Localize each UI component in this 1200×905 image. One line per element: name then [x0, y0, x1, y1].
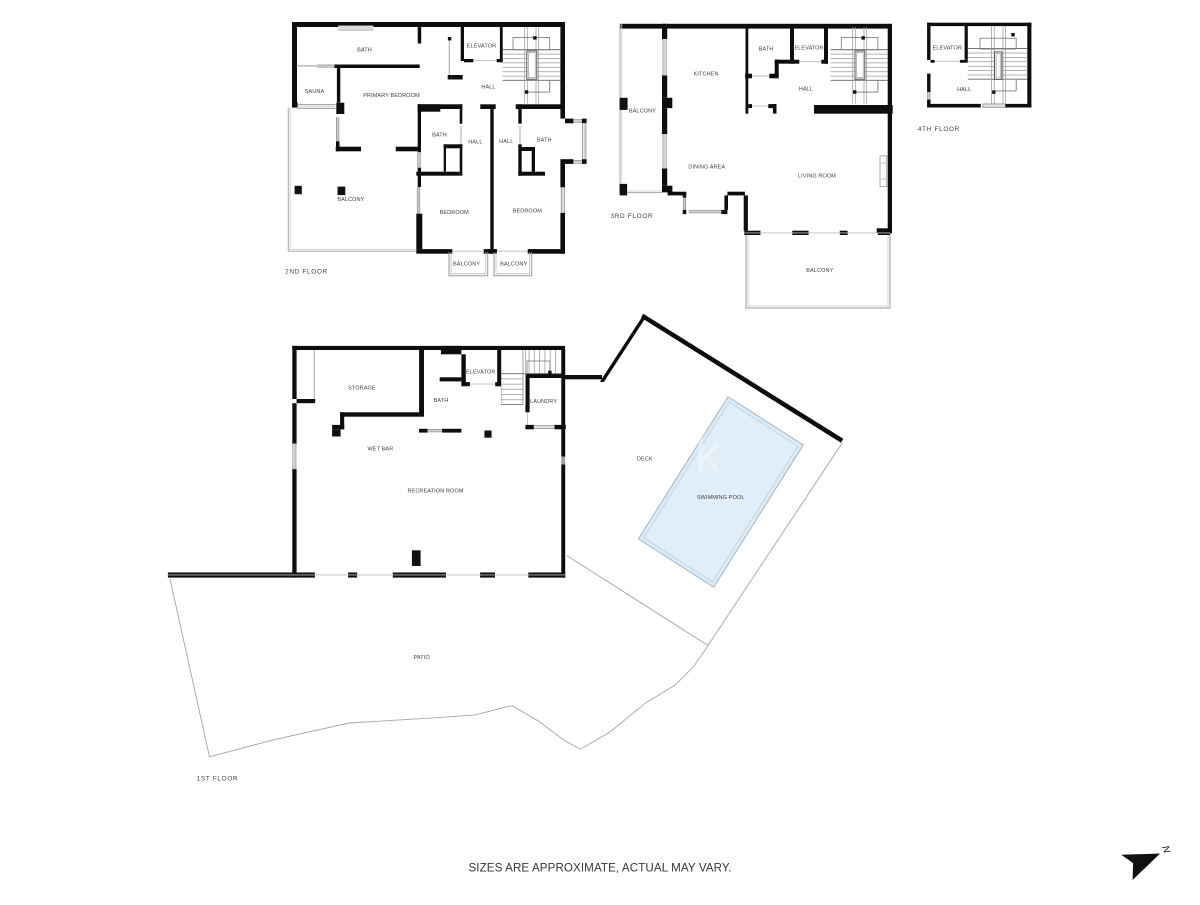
- svg-text:3RD FLOOR: 3RD FLOOR: [610, 213, 653, 220]
- svg-text:LIVING ROOM: LIVING ROOM: [798, 173, 836, 179]
- svg-text:BATH: BATH: [432, 133, 447, 139]
- svg-text:HALL: HALL: [799, 86, 813, 92]
- svg-text:ELEVATOR: ELEVATOR: [466, 370, 495, 376]
- svg-text:DECK: DECK: [637, 456, 653, 462]
- svg-text:BALCONY: BALCONY: [500, 262, 527, 268]
- svg-text:HALL: HALL: [468, 140, 482, 146]
- svg-text:SIZES ARE APPROXIMATE, ACTUAL: SIZES ARE APPROXIMATE, ACTUAL MAY VARY.: [468, 862, 731, 875]
- svg-text:DINING AREA: DINING AREA: [688, 165, 725, 171]
- svg-text:PATIO: PATIO: [414, 655, 431, 661]
- svg-text:BATH: BATH: [759, 46, 774, 52]
- svg-text:RECREATION ROOM: RECREATION ROOM: [407, 489, 463, 495]
- svg-text:ELEVATOR: ELEVATOR: [933, 45, 962, 51]
- svg-text:HALL: HALL: [499, 139, 513, 145]
- svg-text:HALL: HALL: [957, 87, 971, 93]
- svg-text:ELEVATOR: ELEVATOR: [795, 45, 824, 51]
- svg-text:BATH: BATH: [357, 47, 372, 53]
- svg-text:ELEVATOR: ELEVATOR: [467, 44, 496, 50]
- svg-text:BALCONY: BALCONY: [629, 109, 656, 115]
- svg-text:BALCONY: BALCONY: [337, 197, 364, 203]
- svg-text:BEDROOM: BEDROOM: [513, 208, 543, 214]
- svg-text:STORAGE: STORAGE: [348, 386, 376, 392]
- svg-text:2ND FLOOR: 2ND FLOOR: [285, 268, 328, 275]
- svg-text:KITCHEN: KITCHEN: [694, 72, 719, 78]
- svg-text:SWIMMING POOL: SWIMMING POOL: [697, 495, 745, 501]
- svg-text:HALL: HALL: [481, 85, 495, 91]
- svg-text:LAUNDRY: LAUNDRY: [530, 399, 557, 405]
- svg-text:BALCONY: BALCONY: [806, 268, 833, 274]
- svg-text:BATH: BATH: [434, 398, 449, 404]
- svg-text:BEDROOM: BEDROOM: [440, 210, 470, 216]
- svg-text:SAUNA: SAUNA: [305, 89, 325, 95]
- svg-text:BALCONY: BALCONY: [453, 262, 480, 268]
- svg-text:1ST FLOOR: 1ST FLOOR: [197, 776, 239, 783]
- svg-text:BATH: BATH: [537, 138, 552, 144]
- svg-text:4TH FLOOR: 4TH FLOOR: [918, 126, 960, 133]
- svg-text:WET BAR: WET BAR: [368, 447, 394, 453]
- svg-text:k: k: [695, 426, 721, 482]
- svg-text:PRIMARY BEDROOM: PRIMARY BEDROOM: [363, 93, 420, 99]
